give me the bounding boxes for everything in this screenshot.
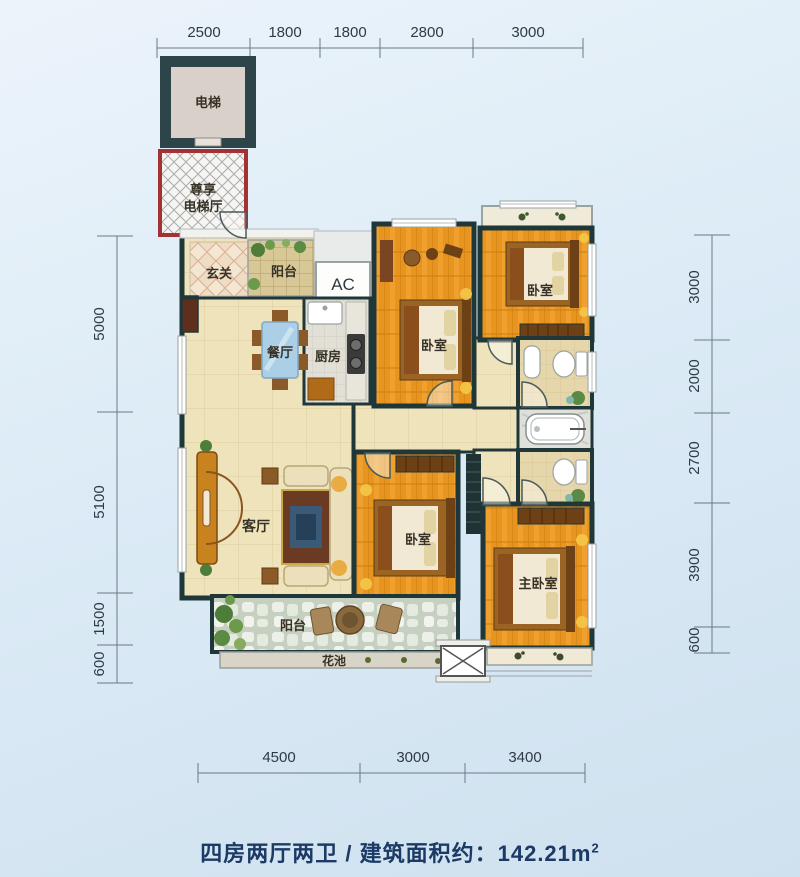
master-bedroom-label: 主卧室 <box>518 576 557 591</box>
toilet-icon <box>553 459 587 485</box>
elevator-hall-label-1: 尊享 <box>190 182 216 197</box>
dim-right-1: 3000 <box>686 270 703 303</box>
ac-label: AC <box>331 275 355 294</box>
bathtub-sink-icon <box>524 346 540 378</box>
wardrobe-icon <box>520 324 584 337</box>
dim-right-2: 2000 <box>686 359 703 392</box>
dim-top-1: 2500 <box>187 24 220 41</box>
dim-bottom-1: 4500 <box>262 749 295 766</box>
bedroom-bottom-mid-label: 卧室 <box>405 532 431 547</box>
wardrobe-icon <box>518 508 584 524</box>
dim-bottom-3: 3400 <box>508 749 541 766</box>
wardrobe-icon <box>396 456 454 472</box>
kitchen-cabinet-icon <box>308 378 334 400</box>
kitchen: 厨房 <box>304 298 370 404</box>
dim-right-4: 3900 <box>686 548 703 581</box>
dim-bottom-2: 3000 <box>396 749 429 766</box>
caption: 四房两厅两卫 / 建筑面积约：142.21m2 <box>0 836 800 868</box>
dim-left-1: 5000 <box>91 307 108 340</box>
floor-plan-page: 2500 1800 1800 2800 3000 4500 3000 3400 … <box>0 0 800 877</box>
kitchen-stove-icon <box>347 334 365 374</box>
dim-top-5: 3000 <box>511 24 544 41</box>
dim-left-3: 1500 <box>91 602 108 635</box>
bath-tub-room <box>518 408 592 450</box>
balcony-bottom-label: 阳台 <box>280 618 306 633</box>
dim-top-3: 1800 <box>333 24 366 41</box>
entrance-label: 玄关 <box>206 266 232 281</box>
dining-label: 餐厅 <box>266 345 293 360</box>
caption-sup: 2 <box>591 841 599 856</box>
dim-left-4: 600 <box>91 651 108 676</box>
elevator: 电梯 <box>160 56 256 148</box>
bedroom-top-right: 卧室 <box>480 206 592 340</box>
kitchen-label: 厨房 <box>315 349 341 364</box>
dim-right-5: 600 <box>686 627 703 652</box>
living-label: 客厅 <box>241 518 270 534</box>
bedroom-bottom-mid: 卧室 <box>354 452 458 598</box>
bedroom-top-mid: 卧室 <box>374 224 474 406</box>
ac-platform: AC <box>314 231 372 299</box>
toilet-icon <box>553 351 587 377</box>
dim-right-3: 2700 <box>686 441 703 474</box>
elevator-label: 电梯 <box>195 95 221 110</box>
balcony-bottom: 阳台 花池 <box>212 595 490 682</box>
floor-plan-drawing: 2500 1800 1800 2800 3000 4500 3000 3400 … <box>0 0 800 877</box>
bedroom-top-mid-label: 卧室 <box>421 338 447 353</box>
window-symbol-icon <box>436 640 490 682</box>
balcony-table-icon <box>310 604 403 636</box>
dim-left-2: 5100 <box>91 485 108 518</box>
kitchen-sink-icon <box>308 302 342 324</box>
dim-top-4: 2800 <box>410 24 443 41</box>
plant-icon <box>571 489 585 503</box>
dim-top-2: 1800 <box>268 24 301 41</box>
elevator-hall-label-2: 电梯厅 <box>183 199 222 214</box>
bedroom-top-right-label: 卧室 <box>527 283 553 298</box>
caption-text: 四房两厅两卫 / 建筑面积约：142.21m <box>200 841 591 866</box>
flower-bed-label: 花池 <box>322 653 346 668</box>
balcony-top-label: 阳台 <box>271 264 297 279</box>
